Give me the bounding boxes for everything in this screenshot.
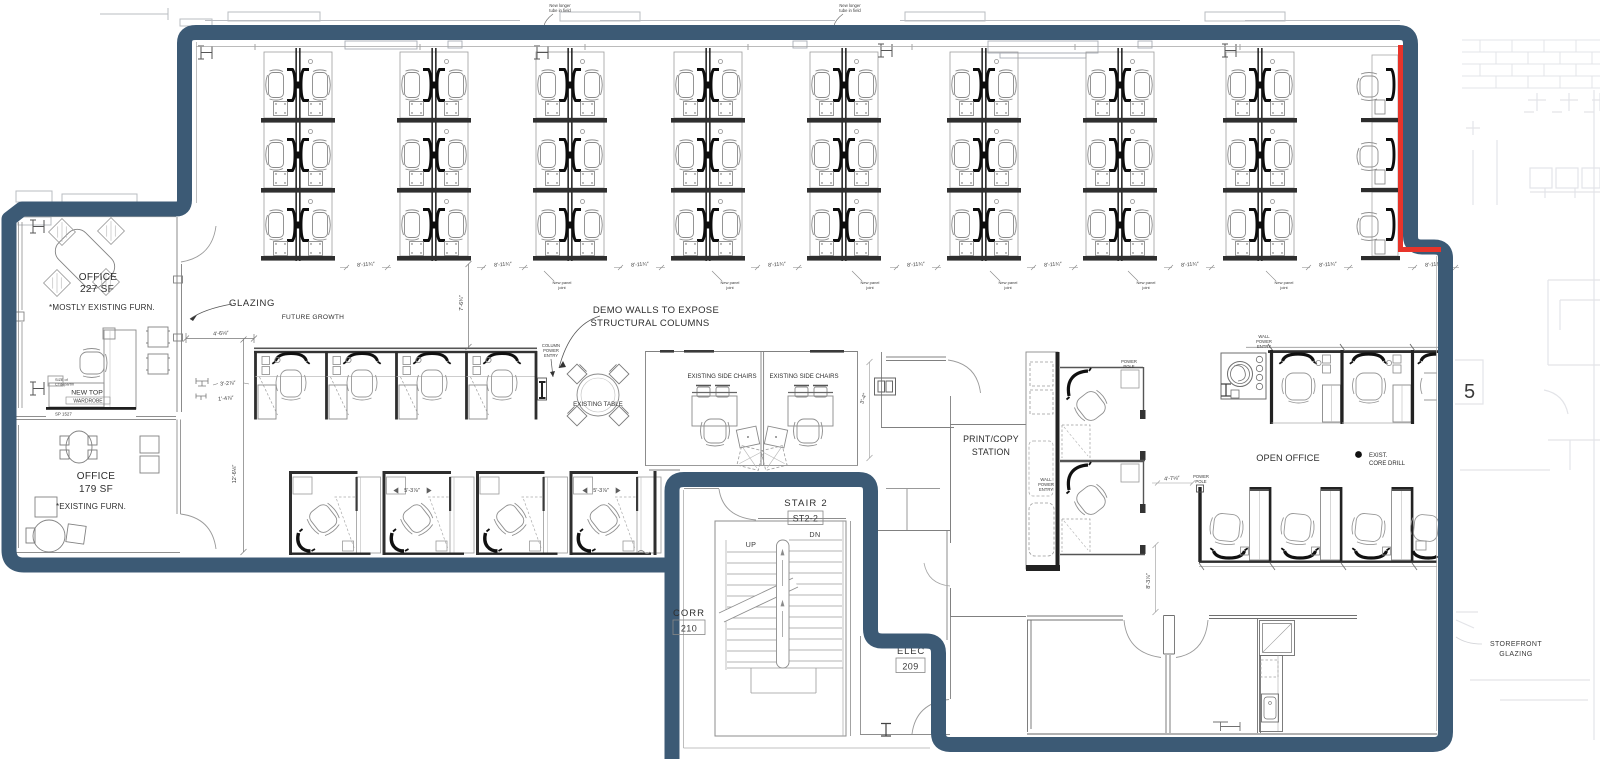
svg-text:EXISTING TABLE: EXISTING TABLE [573,401,623,408]
svg-text:5′-3⅞″: 5′-3⅞″ [593,488,609,494]
svg-text:4′-6⅛″: 4′-6⅛″ [213,330,229,337]
svg-text:DEMO WALLS TO EXPOSE: DEMO WALLS TO EXPOSE [593,305,719,316]
svg-text:179 SF: 179 SF [79,484,113,495]
svg-text:CTdepartm: CTdepartm [55,383,74,387]
svg-text:UP: UP [746,540,757,549]
svg-text:7′-6¾″: 7′-6¾″ [459,295,465,311]
svg-text:*MOSTLY EXISTING FURN.: *MOSTLY EXISTING FURN. [49,303,155,312]
svg-text:STRUCTURAL COLUMNS: STRUCTURAL COLUMNS [590,318,709,329]
svg-text:STATION: STATION [972,447,1010,457]
svg-text:STOREFRONT: STOREFRONT [1490,641,1542,648]
svg-text:210: 210 [681,624,697,634]
svg-text:ENTRY: ENTRY [544,353,558,358]
svg-text:NEW TOP: NEW TOP [71,390,103,397]
svg-text:SIZE of: SIZE of [55,378,69,382]
svg-text:SP 1527: SP 1527 [55,412,72,417]
svg-text:OPEN OFFICE: OPEN OFFICE [1256,453,1319,463]
svg-text:ST2-2: ST2-2 [793,514,818,524]
svg-text:POLE: POLE [1195,479,1206,484]
svg-text:POLE: POLE [1123,364,1134,369]
svg-text:227 SF: 227 SF [80,284,114,295]
svg-text:EXISTING SIDE CHAIRS: EXISTING SIDE CHAIRS [769,373,838,380]
svg-text:12′-6⅛″: 12′-6⅛″ [232,465,238,484]
svg-text:5′-3⅞″: 5′-3⅞″ [404,488,420,494]
svg-text:8′-3⅞″: 8′-3⅞″ [1146,573,1152,589]
svg-text:4′-7⅛″: 4′-7⅛″ [1164,475,1180,482]
svg-text:OFFICE: OFFICE [79,272,117,283]
svg-text:*EXISTING FURN.: *EXISTING FURN. [56,502,126,511]
svg-text:EXIST.: EXIST. [1369,453,1388,459]
svg-text:WARDROBE: WARDROBE [73,399,103,405]
svg-text:209: 209 [902,662,918,672]
svg-text:tube in field: tube in field [839,8,861,13]
svg-text:EXISTING SIDE CHAIRS: EXISTING SIDE CHAIRS [687,373,756,380]
svg-text:GLAZING: GLAZING [1499,651,1533,658]
svg-text:STAIR 2: STAIR 2 [784,498,828,509]
svg-text:5: 5 [1464,381,1475,403]
svg-text:DN: DN [809,530,820,539]
svg-text:ENTRY: ENTRY [1257,344,1271,349]
svg-text:CORR: CORR [673,608,705,619]
svg-text:OFFICE: OFFICE [77,471,115,482]
svg-text:FUTURE GROWTH: FUTURE GROWTH [282,314,345,321]
svg-text:CORE DRILL: CORE DRILL [1369,461,1406,467]
svg-text:tube in field: tube in field [549,8,571,13]
svg-text:joint: joint [725,285,734,290]
svg-text:8′-11¾″: 8′-11¾″ [357,261,375,268]
svg-text:PRINT/COPY: PRINT/COPY [963,434,1019,444]
svg-text:GLAZING: GLAZING [229,298,275,309]
svg-text:ENTRY: ENTRY [1039,487,1053,492]
